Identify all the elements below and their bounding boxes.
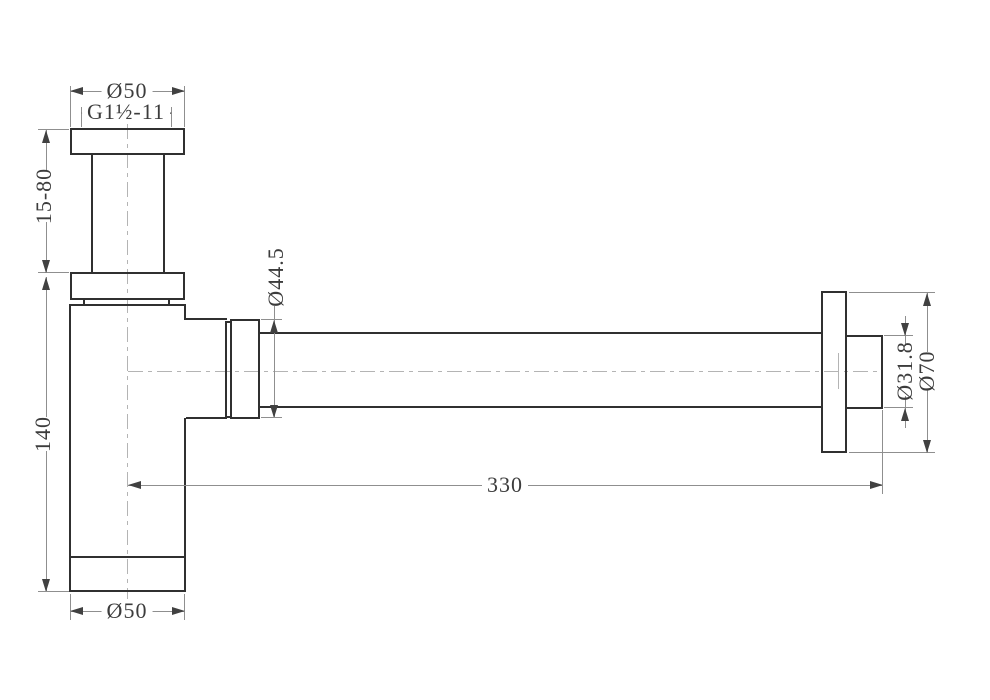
ext-line [261, 417, 282, 418]
arrowhead-up-icon [923, 293, 931, 306]
dim-line-body-height [46, 277, 47, 417]
arrowhead-right-icon [172, 87, 185, 95]
inlet-tube-wall-left [91, 154, 93, 273]
slip-collar [70, 272, 185, 300]
dim-body-diameter-label: Ø50 [102, 599, 153, 623]
wall-outlet-tail [845, 335, 883, 409]
arrowhead-right-icon [172, 607, 185, 615]
dim-nut-diameter-label: Ø44.5 [265, 247, 287, 306]
trap-body-bottom-edge [69, 590, 186, 592]
dim-pipe-length-label: 330 [482, 473, 528, 497]
dim-inlet-height-label: 15-80 [33, 168, 55, 224]
pipe-bottom-edge [259, 406, 823, 408]
outlet-nut [230, 319, 260, 419]
inlet-tube-wall-right [163, 154, 165, 273]
trap-body-top-edge [69, 304, 186, 306]
arrowhead-down-icon [901, 323, 909, 336]
trap-body-left-edge [69, 304, 71, 592]
ext-line [38, 591, 69, 592]
outlet-stub-bottom-edge [186, 417, 227, 419]
ext-line [261, 319, 282, 320]
dim-flange-diameter-label: Ø70 [916, 351, 938, 392]
dim-line-body-height [46, 451, 47, 592]
inlet-nut [70, 128, 185, 155]
vertical-centerline [127, 95, 128, 622]
arrowhead-down-icon [42, 260, 50, 273]
dim-outlet-diameter-label: Ø31.8 [894, 341, 916, 400]
arrowhead-left-icon [128, 481, 141, 489]
trap-body-base-seam [69, 556, 186, 558]
dim-thread-spec-label: G1½-11 [82, 100, 170, 124]
arrowhead-up-icon [42, 277, 50, 290]
bottle-trap-technical-drawing: Ø50 G1½-11 15-80 140 Ø44.5 330 Ø31.8 Ø70 [0, 0, 990, 700]
wall-flange [821, 291, 847, 453]
trap-body-right-edge-lower [184, 418, 186, 592]
dim-body-height-label: 140 [32, 416, 54, 452]
arrowhead-down-icon [923, 440, 931, 453]
arrowhead-left-icon [70, 607, 83, 615]
arrowhead-up-icon [270, 320, 278, 333]
arrowhead-up-icon [901, 408, 909, 421]
outlet-stub-top-edge [186, 318, 227, 320]
pipe-top-edge [259, 332, 823, 334]
arrowhead-up-icon [42, 130, 50, 143]
arrowhead-left-icon [70, 87, 83, 95]
